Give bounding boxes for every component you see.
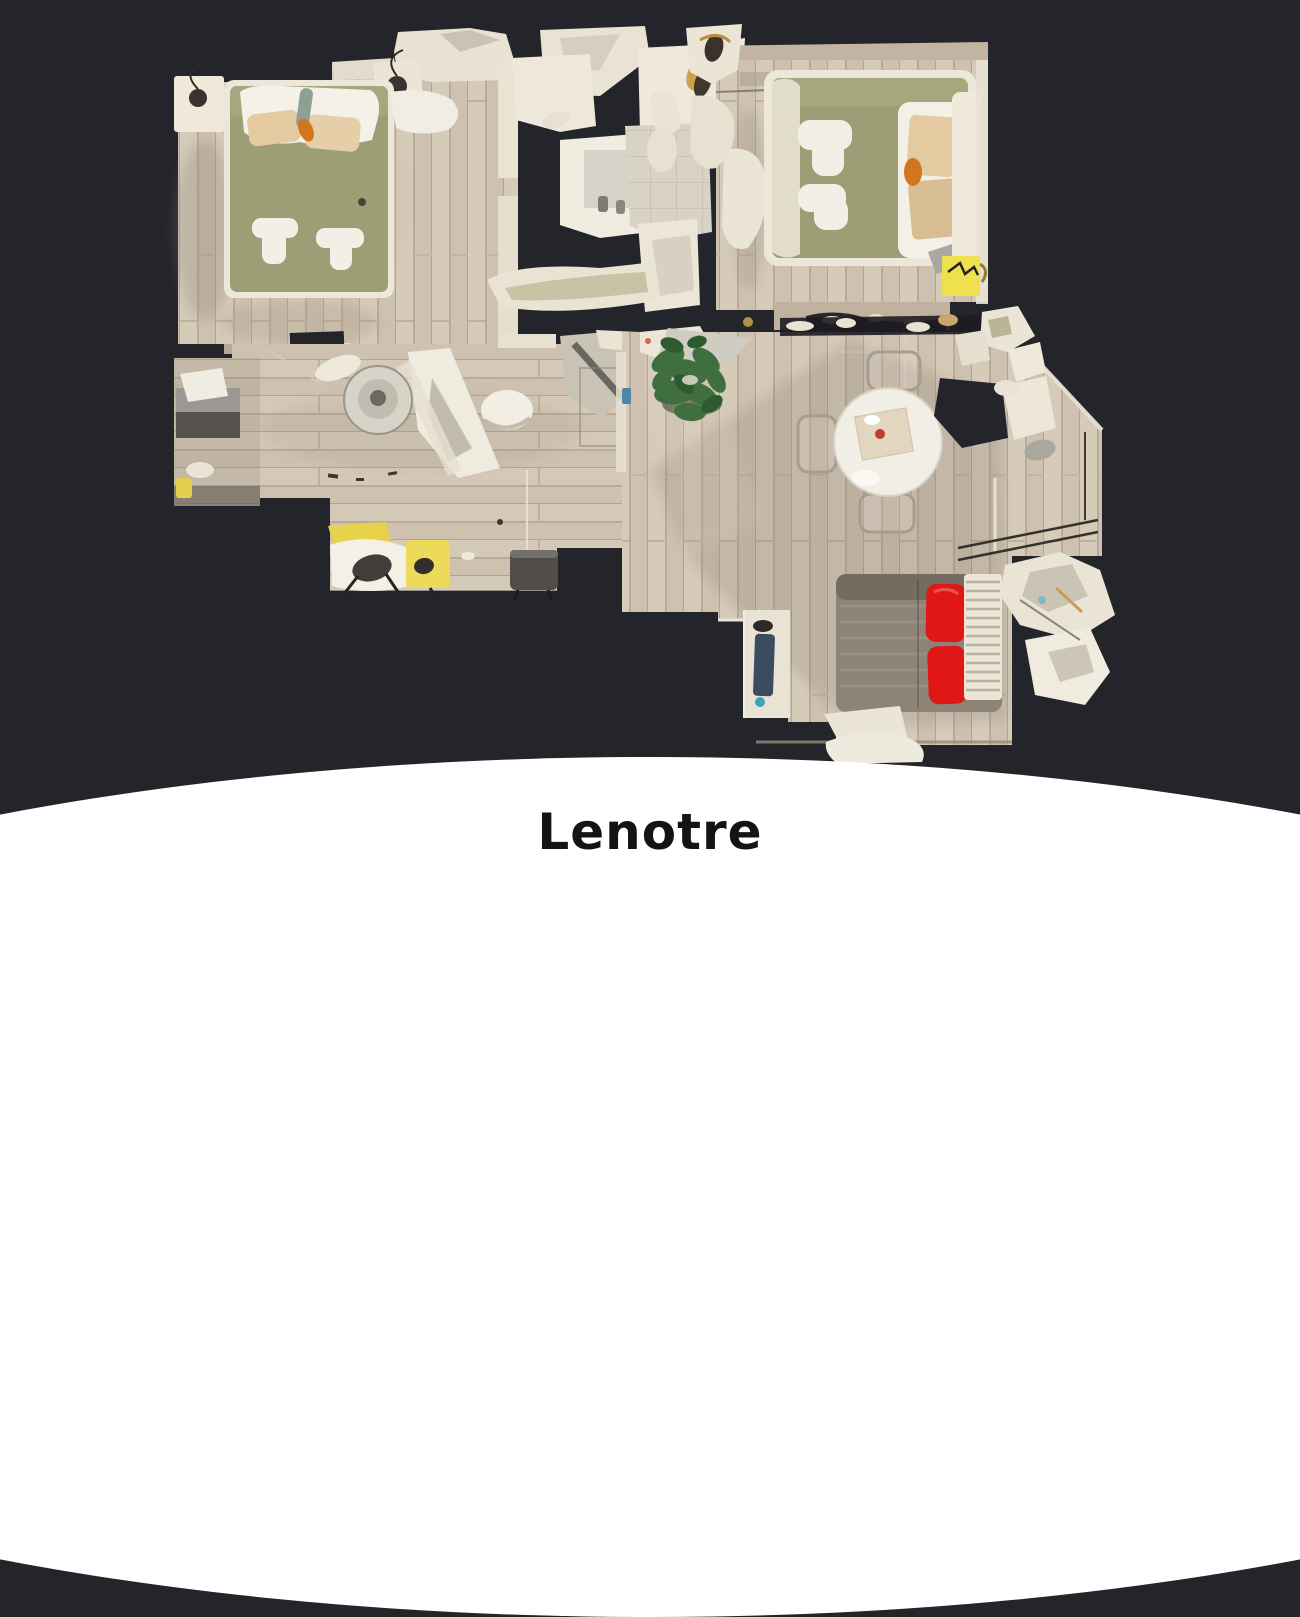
red-cushion bbox=[925, 584, 966, 643]
scan-fragments bbox=[1000, 552, 1115, 705]
floorplan-card: Lenotre bbox=[0, 0, 1300, 900]
yellow-mat bbox=[942, 256, 980, 296]
room-bedroom-right bbox=[686, 24, 988, 332]
red-cushion bbox=[927, 645, 967, 704]
round-metal-table bbox=[344, 366, 412, 434]
radiator bbox=[964, 574, 1002, 700]
room-bedroom-left bbox=[174, 28, 518, 358]
round-dining-table bbox=[834, 388, 942, 496]
lamp-icon bbox=[189, 89, 207, 107]
room-living-dining bbox=[616, 306, 1115, 764]
footer-curve bbox=[0, 757, 1300, 1617]
orange-accent bbox=[904, 158, 922, 186]
alcove bbox=[744, 610, 790, 718]
pillow-beige bbox=[246, 109, 302, 147]
gray-chair bbox=[510, 550, 558, 600]
property-title: Lenotre bbox=[0, 803, 1300, 861]
